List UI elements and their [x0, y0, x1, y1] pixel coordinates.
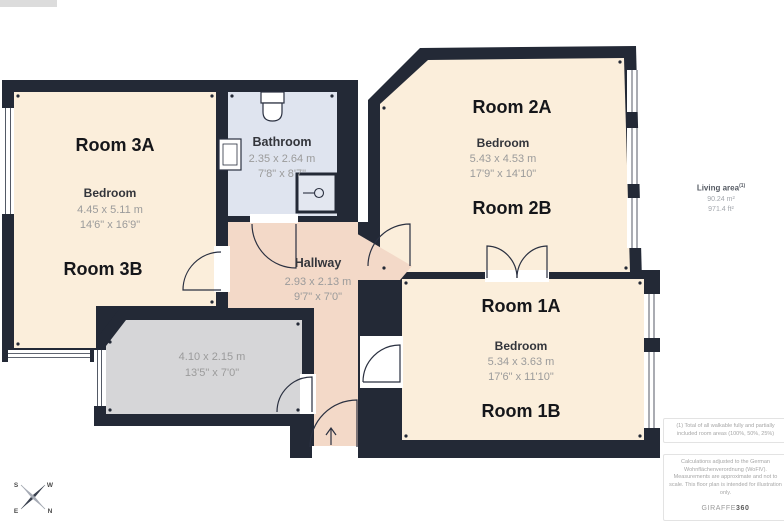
- room-1a-label: Room 1A: [481, 296, 560, 316]
- room1-door-gap: [360, 336, 403, 388]
- balcony-dim-ft: 13'5" x 7'0": [185, 367, 239, 379]
- footnote-box: (1) Total of all walkable fully and part…: [663, 418, 784, 443]
- room-2a-label: Room 2A: [472, 97, 551, 117]
- disclaimer-box: Calculations adjusted to the German Wohn…: [663, 454, 784, 521]
- entrance-corridor-floor: [314, 302, 358, 446]
- living-area-footnote-ref: (1): [739, 183, 745, 189]
- balcony-dim-m: 4.10 x 2.15 m: [179, 351, 246, 363]
- room-2-dim-ft: 17'9" x 14'10": [470, 168, 537, 180]
- room-1b-label: Room 1B: [481, 401, 560, 421]
- bathroom-label: Bathroom: [252, 135, 311, 149]
- room3-door-gap: [214, 246, 230, 292]
- window-room2-right: [627, 70, 643, 248]
- room-3a-label: Room 3A: [75, 135, 154, 155]
- entrance-door-gap: [312, 446, 358, 459]
- room-1-type: Bedroom: [495, 339, 548, 353]
- living-area-ft2: 971.4 ft²: [660, 206, 782, 213]
- toilet-icon: [261, 92, 284, 121]
- room-3-dim-ft: 14'6" x 16'9": [80, 219, 140, 231]
- bathroom-door-gap: [250, 214, 298, 223]
- hallway-dim-ft: 9'7" x 7'0": [294, 291, 342, 303]
- room-3-type: Bedroom: [84, 186, 137, 200]
- balcony-door-gap: [300, 374, 316, 414]
- room-2b-label: Room 2B: [472, 198, 551, 218]
- window-balcony-left: [94, 350, 106, 406]
- compass-e: E: [14, 508, 19, 515]
- giraffe360-logo: GIRAFFE360: [668, 504, 783, 514]
- room-2-floor: [380, 58, 630, 272]
- compass-rose-icon: S W E N: [14, 482, 54, 515]
- sink-icon: [219, 139, 241, 170]
- disclaimer-text: Calculations adjusted to the German Wohn…: [669, 459, 782, 496]
- living-area-title: Living area(1): [660, 183, 782, 193]
- window-room3-left: [2, 108, 14, 214]
- window-room3-bottom: [8, 350, 90, 362]
- room-2-type: Bedroom: [477, 136, 530, 150]
- room-3-dim-m: 4.45 x 5.11 m: [77, 204, 143, 216]
- floorplan-page: { "colors": { "wall": "#232936", "room_f…: [0, 0, 784, 516]
- compass-w: W: [47, 482, 54, 489]
- living-area-m2: 90.24 m²: [660, 196, 782, 203]
- footnote-text: (1) Total of all walkable fully and part…: [676, 423, 774, 437]
- room-1-dim-m: 5.34 x 3.63 m: [488, 356, 555, 368]
- window-room1-right: [644, 294, 660, 428]
- hallway-dim-m: 2.93 x 2.13 m: [285, 276, 352, 288]
- compass-s: S: [14, 482, 19, 489]
- compass-n: N: [48, 508, 53, 515]
- bathroom-dim-m: 2.35 x 2.64 m: [249, 153, 316, 165]
- room-3b-label: Room 3B: [63, 259, 142, 279]
- room-2-dim-m: 5.43 x 4.53 m: [470, 153, 537, 165]
- room-1-dim-ft: 17'6" x 11'10": [488, 371, 554, 383]
- bathroom-dim-ft: 7'8" x 8'7": [258, 168, 306, 180]
- hallway-label: Hallway: [295, 256, 342, 270]
- living-area-summary: Living area(1) 90.24 m² 971.4 ft²: [660, 183, 782, 213]
